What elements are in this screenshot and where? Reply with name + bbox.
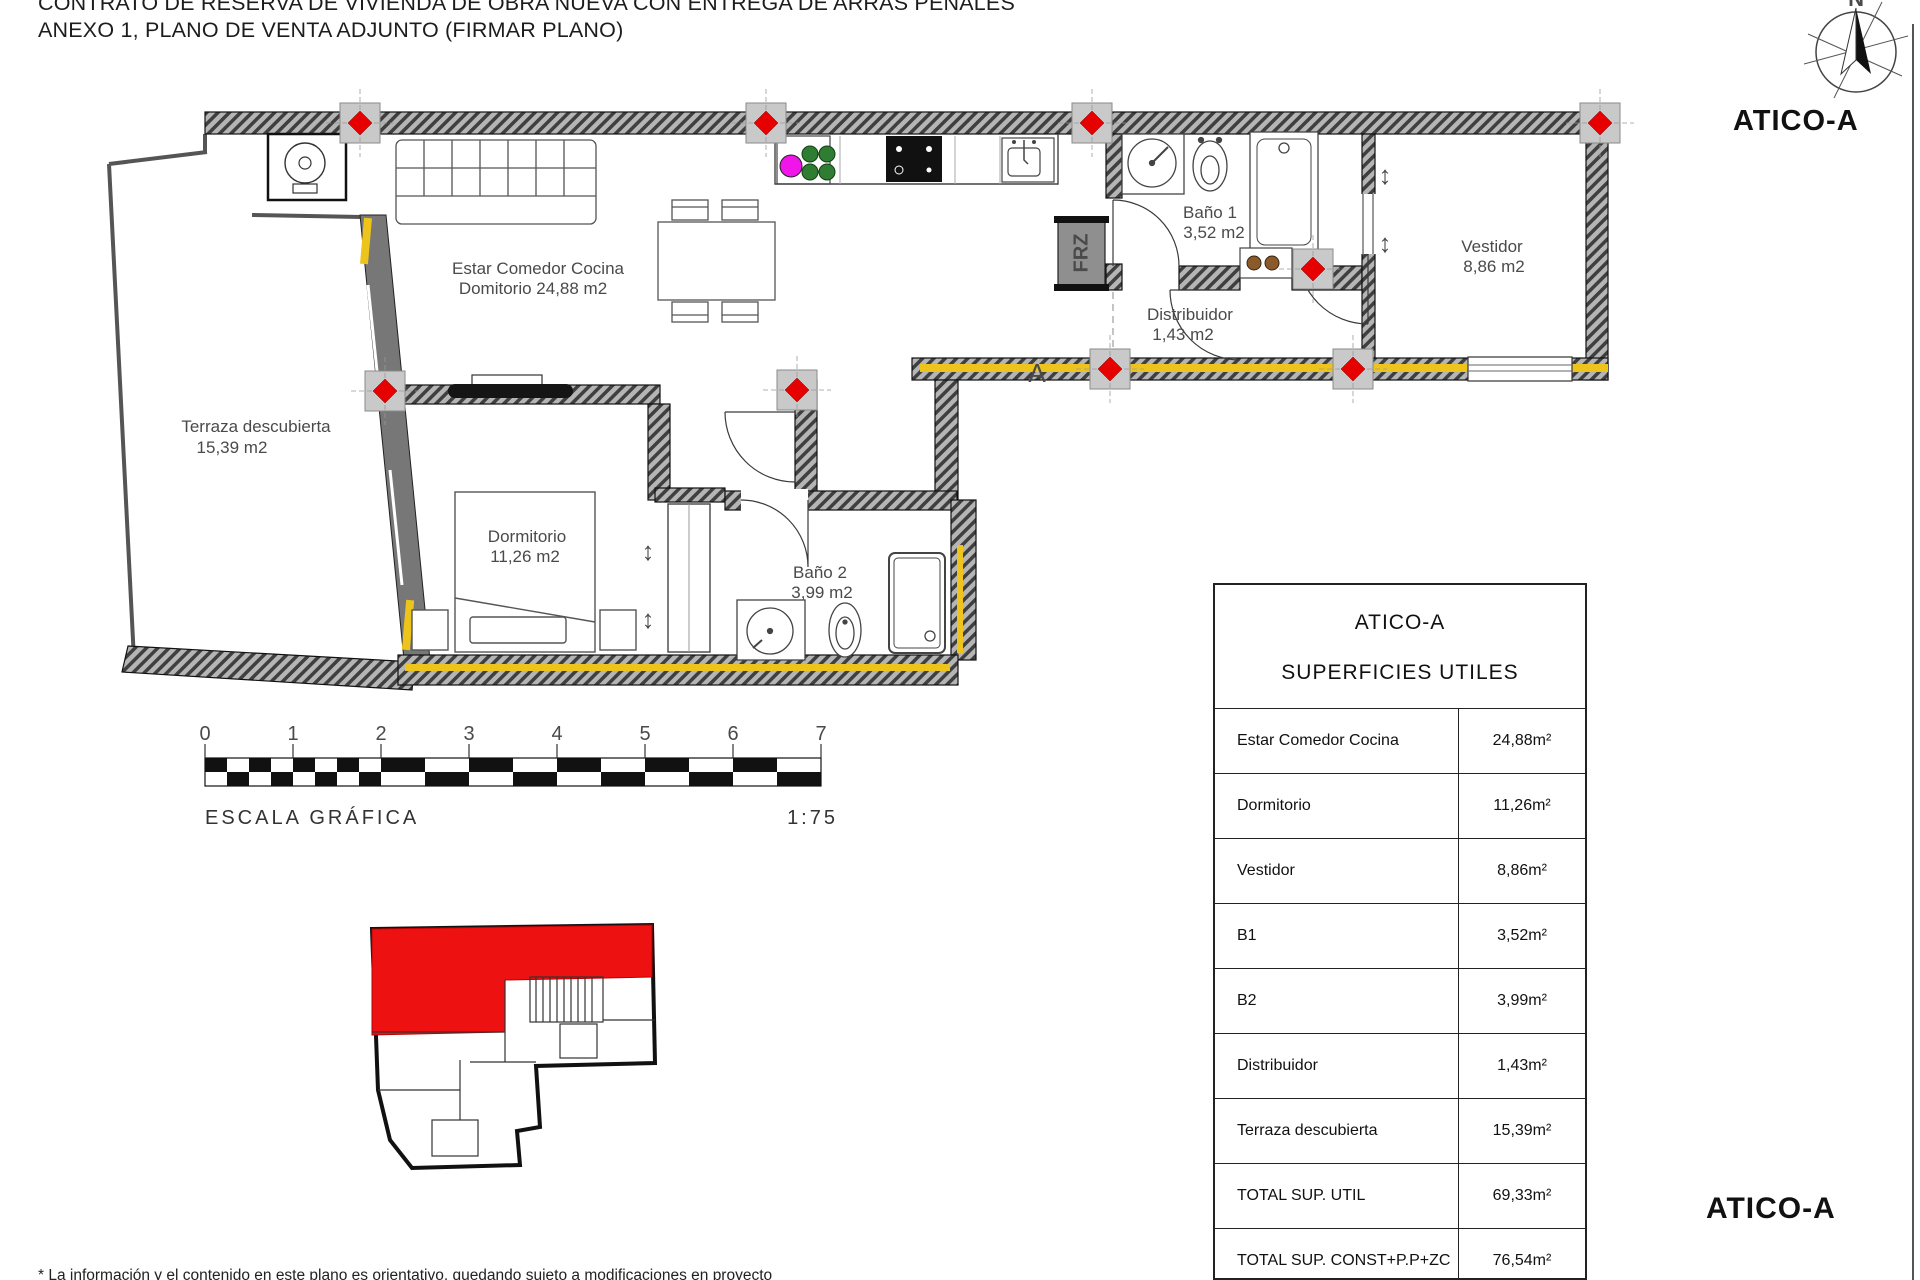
column-marker-icon [1319,335,1387,403]
terrace-area: 15,39 m2 [197,438,268,457]
row-value: 1,43m² [1459,1034,1585,1098]
table-row: Dormitorio 11,26m² [1215,773,1585,838]
surfaces-table: ATICO-A SUPERFICIES UTILES Estar Comedor… [1213,583,1587,1280]
surfaces-table-header: ATICO-A SUPERFICIES UTILES [1215,585,1585,708]
table-row: Vestidor 8,86m² [1215,838,1585,903]
column-marker-icon [1566,89,1634,157]
column-marker-icon [763,356,831,424]
scale-tick: 3 [463,723,474,745]
row-label: B1 [1215,904,1459,968]
table-title: ATICO-A [1355,611,1446,635]
kitchen-sink-icon [1002,138,1054,182]
row-label: TOTAL SUP. CONST+P.P+ZC [1215,1229,1459,1280]
scale-caption: ESCALA GRÁFICA [205,806,419,829]
compass-north-label: N [1848,0,1864,11]
floor-plan-drawing: FRZ [0,0,1920,1280]
dining-table-icon [658,200,775,322]
bath2-area: 3,99 m2 [791,583,852,602]
bath2-label: Baño 2 [793,563,847,582]
row-value: 3,99m² [1459,969,1585,1033]
row-value: 24,88m² [1459,709,1585,773]
bath1-area: 3,52 m2 [1183,223,1244,242]
table-row: TOTAL SUP. CONST+P.P+ZC 76,54m² [1215,1228,1585,1280]
column-marker-icon [351,357,419,425]
row-label: Dormitorio [1215,774,1459,838]
compass-icon: N [1804,0,1908,98]
bedroom-label: Dormitorio [488,527,566,546]
column-marker-icon [732,89,800,157]
row-value: 3,52m² [1459,904,1585,968]
double-arrow-icon: ↕ [1379,160,1392,190]
row-label: Vestidor [1215,839,1459,903]
bath1-label: Baño 1 [1183,203,1237,222]
scale-tick: 1 [287,723,298,745]
disclaimer-note: * La información y el contenido en este … [38,1267,772,1280]
row-label: Distribuidor [1215,1034,1459,1098]
row-value: 69,33m² [1459,1164,1585,1228]
table-row: Estar Comedor Cocina 24,88m² [1215,708,1585,773]
row-value: 15,39m² [1459,1099,1585,1163]
section-letter: A [1028,358,1046,388]
living-room-area: Domitorio 24,88 m2 [459,279,607,298]
freezer-unit: FRZ [1054,216,1109,291]
freezer-label: FRZ [1070,234,1092,273]
table-row: TOTAL SUP. UTIL 69,33m² [1215,1163,1585,1228]
row-label: Terraza descubierta [1215,1099,1459,1163]
scale-tick: 4 [551,723,562,745]
contract-plan-page: CONTRATO DE RESERVA DE VIVIENDA DE OBRA … [0,0,1920,1280]
double-arrow-icon: ↕ [1379,228,1392,258]
hall-area: 1,43 m2 [1152,325,1213,344]
row-value: 76,54m² [1459,1229,1585,1280]
row-label: TOTAL SUP. UTIL [1215,1164,1459,1228]
scale-tick: 6 [727,723,738,745]
terrace-label: Terraza descubierta [181,417,331,436]
dressing-label: Vestidor [1461,237,1523,256]
terrace-outline [109,134,362,660]
tv-icon [448,375,573,398]
glazing-wall [360,215,430,660]
scale-ratio: 1:75 [787,807,838,829]
sofa-icon [396,140,596,224]
row-value: 8,86m² [1459,839,1585,903]
bed-icon [412,492,636,652]
living-room-label: Estar Comedor Cocina [452,259,625,278]
scale-tick: 5 [639,723,650,745]
table-row: Terraza descubierta 15,39m² [1215,1098,1585,1163]
bedroom-area: 11,26 m2 [490,547,560,566]
kitchen-counter [775,134,1058,184]
row-value: 11,26m² [1459,774,1585,838]
cooktop-icon [886,136,942,182]
vestidor-window [1468,357,1572,381]
shelf-icon [1240,248,1292,278]
row-label: B2 [1215,969,1459,1033]
table-row: Distribuidor 1,43m² [1215,1033,1585,1098]
closet-icon: ↕ ↕ [642,504,711,652]
laundry-closet [268,134,346,200]
double-arrow-icon: ↕ [642,536,655,566]
double-arrow-icon: ↕ [642,604,655,634]
scale-tick: 2 [375,723,386,745]
dressing-area: 8,86 m2 [1463,257,1524,276]
table-row: B2 3,99m² [1215,968,1585,1033]
scale-bar: 0 1 2 3 4 5 6 7 ESCALA GRÁFICA 1:75 [199,723,838,829]
key-plan [372,925,655,1168]
column-marker-icon [1076,335,1144,403]
table-subtitle: SUPERFICIES UTILES [1281,661,1518,685]
scale-tick: 0 [199,723,210,745]
hall-label: Distribuidor [1147,305,1233,324]
row-label: Estar Comedor Cocina [1215,709,1459,773]
table-row: B1 3,52m² [1215,903,1585,968]
scale-tick: 7 [815,723,826,745]
